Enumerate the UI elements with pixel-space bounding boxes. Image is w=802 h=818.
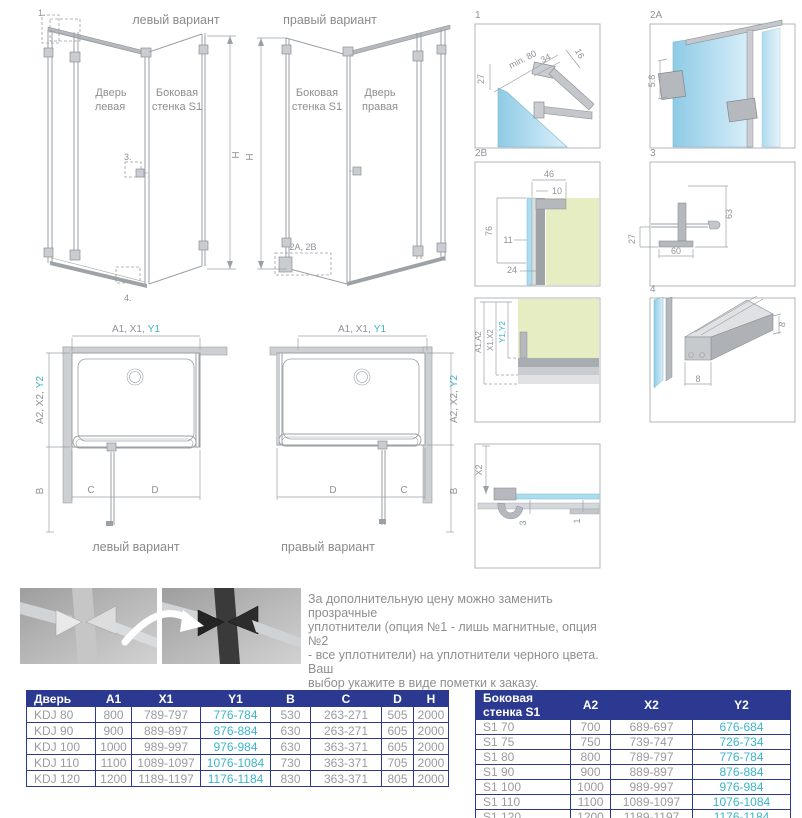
col-h: H [414,691,449,707]
cell: 605 [382,739,414,755]
col-door: Дверь [27,691,96,707]
cell: 1189-1197 [611,810,693,818]
right-variant-title: правый вариант [283,13,377,27]
dim-side: A2, X2,Y2 [35,376,46,424]
cell: 800 [96,707,132,723]
dim-b: B [35,487,46,494]
table-row: S1 75 750 739-747 726-734 [476,735,791,750]
dim-b: B [449,487,460,494]
dim-d: D [151,485,158,496]
cell: 363-371 [311,755,382,771]
note-line-3: - все уплотнители) на уплотнители черног… [308,648,600,676]
detail-3-label: 3 [650,148,656,159]
col-y1: Y1 [201,691,271,707]
door-left-label-2: левая [95,101,125,113]
detail-2b-label: 2B [475,148,488,159]
cell: KDJ 80 [27,707,96,723]
cell: S1 120 [476,810,571,818]
cell: 1200 [571,810,611,818]
table-row: KDJ 80 800 789-797 776-784 530 263-271 5… [27,707,449,723]
table-row: S1 100 1000 989-997 976-984 [476,780,791,795]
cell: 1176-1184 [693,810,791,818]
cell: S1 75 [476,735,571,750]
cell: 1000 [571,780,611,795]
table-row: S1 80 800 789-797 776-784 [476,750,791,765]
cell: 876-884 [201,723,271,739]
cell: 730 [271,755,311,771]
cell: KDJ 110 [27,755,96,771]
cell: KDJ 120 [27,771,96,787]
dim-side: A2, X2,Y2 [449,375,460,423]
side-wall-label-1: Боковая [156,87,198,99]
dim-27: 27 [476,74,486,84]
table-row: KDJ 90 900 889-897 876-884 630 263-271 6… [27,723,449,739]
side-wall-label-2: стенка S1 [292,101,342,113]
table-row: S1 110 1100 1089-1097 1076-1084 [476,795,791,810]
col-c: C [311,691,382,707]
cell: 1076-1084 [693,795,791,810]
side-wall-dimensions-table: Боковая стенка S1 A2 X2 Y2 S1 70 700 689… [475,690,791,818]
cell: 2000 [414,723,449,739]
door-right-label-2: правая [362,101,398,113]
callout-3-label: 3. [124,152,132,162]
cell: S1 70 [476,720,571,735]
dim-63: 63 [724,209,734,219]
cell: S1 100 [476,780,571,795]
dim-46: 46 [544,169,554,179]
dim-24: 24 [507,265,517,275]
cell: 1189-1197 [132,771,201,787]
col-y2: Y2 [693,691,791,720]
col-x1: X1 [132,691,201,707]
col-x2: X2 [611,691,693,720]
cell: 805 [382,771,414,787]
table-row: KDJ 120 1200 1189-1197 1176-1184 830 363… [27,771,449,787]
side-wall-label-2: стенка S1 [152,101,202,113]
cell: 889-897 [611,765,693,780]
cell: 363-371 [311,771,382,787]
cell: 630 [271,723,311,739]
plan-right-caption: правый вариант [281,540,375,554]
cell: 776-784 [201,707,271,723]
door-dimensions-table: Дверь A1 X1 Y1 B C D H KDJ 80 800 789-79… [26,690,449,787]
left-variant-title: левый вариант [132,13,220,27]
callout-1-label: 1. [38,8,46,18]
dim-c: C [400,485,407,496]
dim-d: D [329,485,336,496]
dim-76: 76 [484,226,494,236]
cell: 530 [271,707,311,723]
cell: 889-897 [132,723,201,739]
table-row: S1 90 900 889-897 876-884 [476,765,791,780]
dim-top: A1, X1,Y1 [338,324,386,335]
cell: S1 110 [476,795,571,810]
plan-right-tray [277,353,425,445]
cell: 739-747 [611,735,693,750]
dim-h: H [231,151,242,158]
cell: 705 [382,755,414,771]
cell: 726-734 [693,735,791,750]
page: левый вариант 1. 3. [0,0,802,818]
col-side-wall: Боковая стенка S1 [476,691,571,720]
cell: 1000 [96,739,132,755]
door-table-header-row: Дверь A1 X1 Y1 B C D H [27,691,449,707]
cell: 900 [96,723,132,739]
dim-60: 60 [671,246,681,256]
note-line-2: уплотнители (опция №1 - лишь магнитные, … [308,620,600,648]
cell: 700 [571,720,611,735]
left-variant-height-dimension: H [207,36,242,269]
cell: 676-684 [693,720,791,735]
table-row: S1 70 700 689-697 676-684 [476,720,791,735]
cell: 789-797 [132,707,201,723]
cell: 505 [382,707,414,723]
cell: 976-984 [693,780,791,795]
cell: KDJ 100 [27,739,96,755]
cell: 1100 [96,755,132,771]
cell: 2000 [414,707,449,723]
cell: 2000 [414,755,449,771]
detail-2a-label: 2A [650,10,663,21]
cell: 263-271 [311,707,382,723]
cell: 1100 [571,795,611,810]
table-row: KDJ 110 1100 1089-1097 1076-1084 730 363… [27,755,449,771]
cell: 830 [271,771,311,787]
cell: 989-997 [611,780,693,795]
dim-top: A1, X1,Y1 [112,324,160,335]
cell: 263-271 [311,723,382,739]
side-table-header-row: Боковая стенка S1 A2 X2 Y2 [476,691,791,720]
detail-1-label: 1 [475,10,481,21]
plan-left-tray [72,353,200,447]
left-variant-plan-view: A1, X1,Y1 A2, X2,Y2 B C D левый вариант [20,300,248,562]
note-line-1: За дополнительную цену можно заменить пр… [308,592,600,620]
callout-2ab-label: 2A, 2B [289,242,316,252]
cell: 1176-1184 [201,771,271,787]
door-left-label-1: Дверь [95,87,126,99]
cell: 800 [571,750,611,765]
dim-58: 5.8 [647,75,657,88]
cell: 750 [571,735,611,750]
col-a1: A1 [96,691,132,707]
detail-4-label: 4 [650,284,656,295]
cell: 900 [571,765,611,780]
dim-x1x2: X1,X2 [486,329,495,351]
table-row: KDJ 100 1000 989-997 976-984 630 363-371… [27,739,449,755]
cell: 789-797 [611,750,693,765]
table-row: S1 120 1200 1189-1197 1176-1184 [476,810,791,818]
cell: KDJ 90 [27,723,96,739]
col-d: D [382,691,414,707]
cell: 776-784 [693,750,791,765]
cell: 1200 [96,771,132,787]
cell: 630 [271,739,311,755]
right-variant-plan-view: A1, X1,Y1 A2, X2,Y2 B D C правый вариант [248,300,476,562]
dim-h: H [245,153,256,160]
cell: 989-997 [132,739,201,755]
note-line-4: выбор укажите в виде пометки к заказу. [308,676,600,690]
seal-option-note: За дополнительную цену можно заменить пр… [308,592,600,690]
cell: 1076-1084 [201,755,271,771]
detail-drawings: 1 2A 2B 3 4 min. 80 34 16 27 [470,0,802,580]
dim-10: 10 [552,186,562,196]
cell: 976-984 [201,739,271,755]
cell: 363-371 [311,739,382,755]
dim-y1y2: Y1,Y2 [498,321,507,343]
right-variant-3d-drawing: правый вариант 2A, 2B [243,3,468,303]
cell: 689-697 [611,720,693,735]
col-b: B [271,691,311,707]
dim-3: 3 [518,520,528,525]
dim-27: 27 [627,234,637,244]
seal-photos [20,586,301,666]
right-variant-height-dimension: H [245,38,287,269]
cell: S1 90 [476,765,571,780]
side-wall-label-1: Боковая [296,87,338,99]
dim-c: C [87,485,94,496]
cell: 1089-1097 [611,795,693,810]
cell: 2000 [414,771,449,787]
cell: 1089-1097 [132,755,201,771]
cell: S1 80 [476,750,571,765]
dim-1: 1 [572,518,582,523]
dim-11: 11 [503,235,512,245]
cell: 605 [382,723,414,739]
plan-left-caption: левый вариант [92,540,180,554]
dim-8-bottom: 8 [695,374,700,384]
left-variant-3d-drawing: левый вариант 1. 3. [8,3,246,303]
cell: 876-884 [693,765,791,780]
cell: 2000 [414,739,449,755]
col-a2: A2 [571,691,611,720]
door-right-label-1: Дверь [364,87,395,99]
